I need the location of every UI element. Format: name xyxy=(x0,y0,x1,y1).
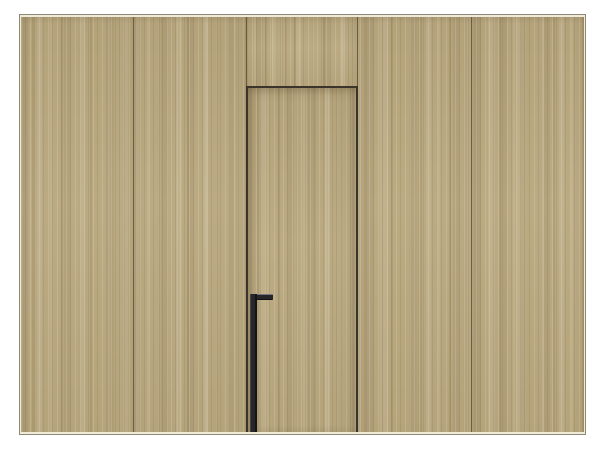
wall-panel-2 xyxy=(133,17,246,432)
wall-panel-1 xyxy=(21,17,133,432)
wall-panel-4 xyxy=(358,17,471,432)
door-pull-handle xyxy=(250,294,273,432)
door-bay xyxy=(246,17,359,432)
wall-panel-5 xyxy=(471,17,584,432)
concealed-door xyxy=(246,86,359,432)
render-canvas xyxy=(0,0,600,450)
transom-panel xyxy=(246,17,359,86)
handle-vertical-bar xyxy=(250,294,257,432)
wall-edge-frame xyxy=(19,14,586,435)
wood-paneled-wall xyxy=(21,17,584,432)
